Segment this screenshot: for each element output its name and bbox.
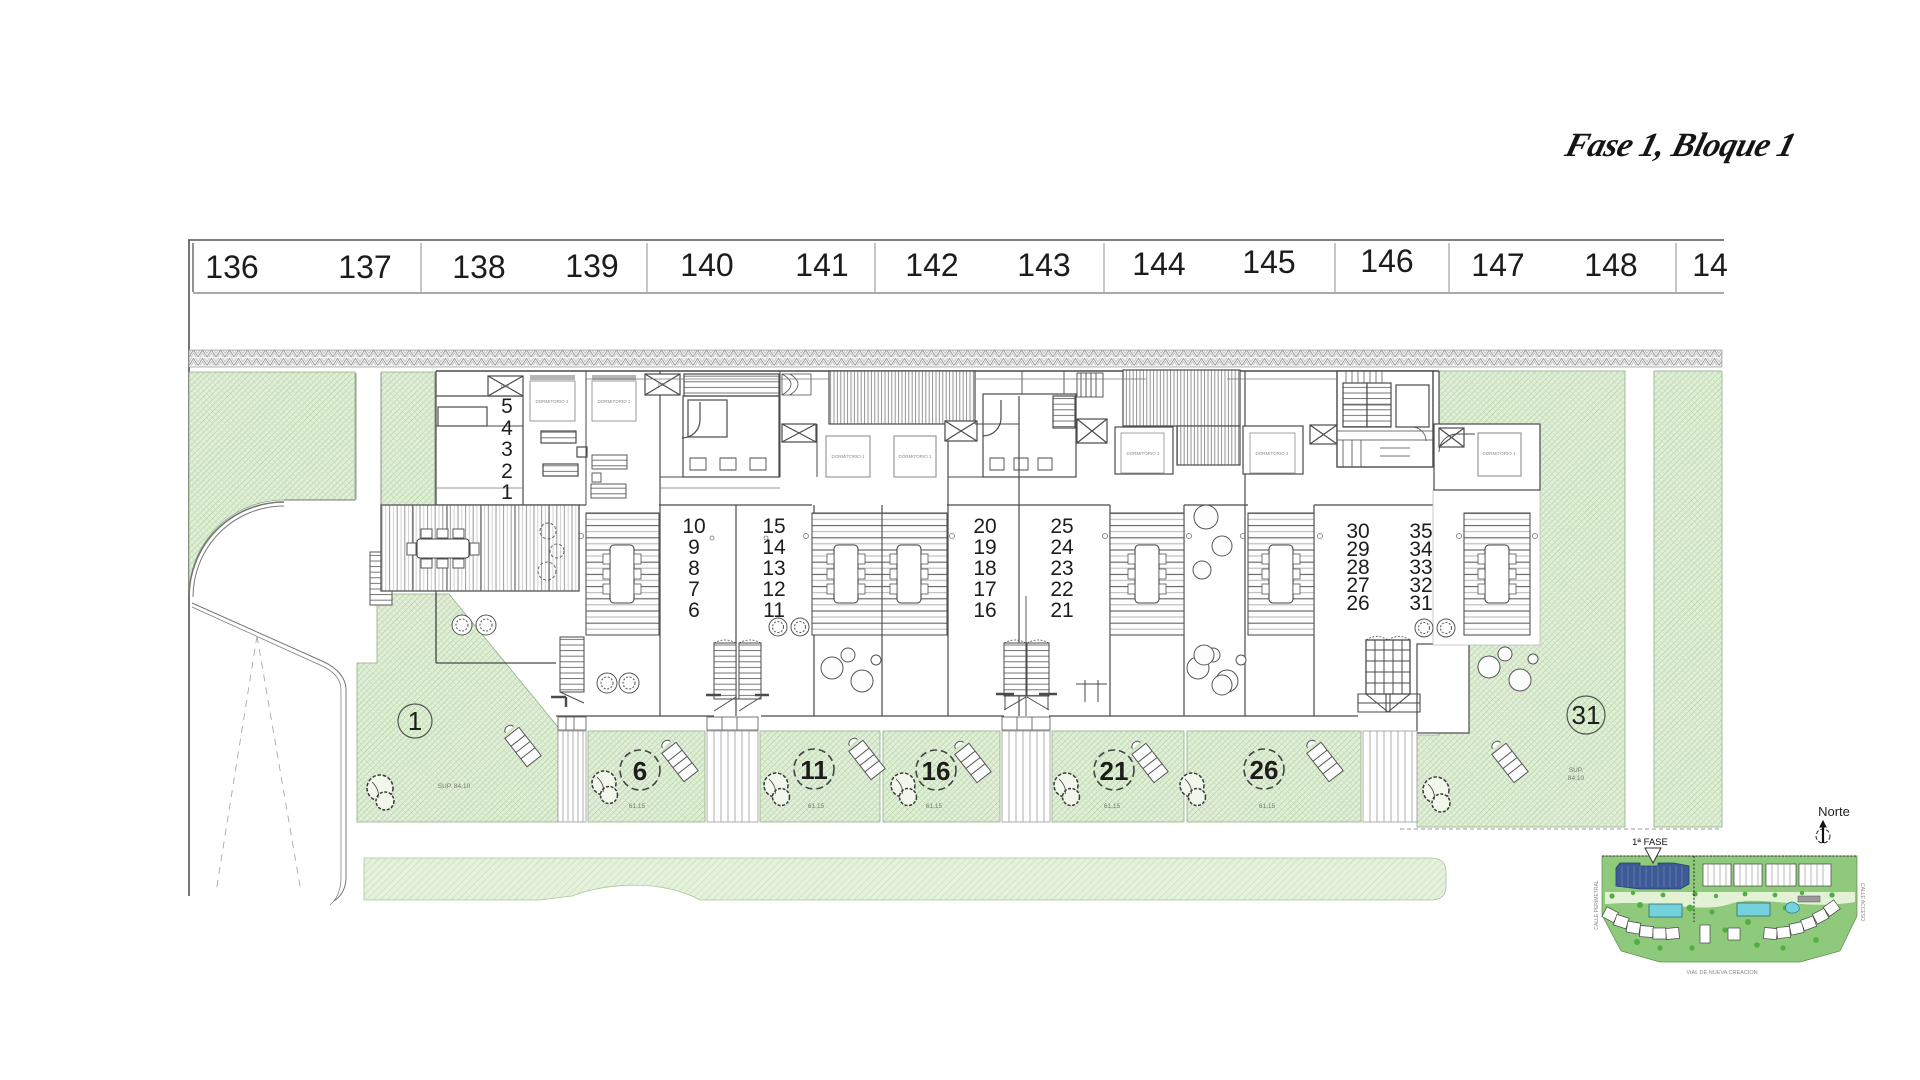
svg-text:19: 19 <box>973 536 996 559</box>
svg-text:DORMITORIO 1: DORMITORIO 1 <box>598 399 631 404</box>
svg-text:16: 16 <box>973 599 996 622</box>
svg-text:23: 23 <box>1050 557 1073 580</box>
svg-text:P.05: P.05 <box>501 384 510 389</box>
svg-text:61,15: 61,15 <box>1104 803 1121 810</box>
svg-text:146: 146 <box>1360 243 1413 279</box>
svg-text:148: 148 <box>1584 247 1637 283</box>
svg-text:15: 15 <box>762 515 785 538</box>
svg-text:18: 18 <box>973 557 996 580</box>
svg-text:137: 137 <box>338 249 391 285</box>
svg-text:20: 20 <box>973 515 996 538</box>
svg-text:DORMITORIO 1: DORMITORIO 1 <box>536 399 569 404</box>
svg-text:DORMITORIO 1: DORMITORIO 1 <box>1483 451 1516 456</box>
svg-text:21: 21 <box>1050 599 1073 622</box>
svg-text:VIAL DE NUEVA CREACION: VIAL DE NUEVA CREACION <box>1686 970 1757 976</box>
svg-text:DORMITORIO 1: DORMITORIO 1 <box>1256 451 1289 456</box>
svg-text:14: 14 <box>762 536 786 559</box>
svg-text:6: 6 <box>633 756 647 786</box>
svg-text:61,15: 61,15 <box>1259 803 1276 810</box>
svg-text:84,10: 84,10 <box>1568 775 1585 782</box>
svg-text:1: 1 <box>408 706 422 736</box>
svg-text:140: 140 <box>680 247 733 283</box>
svg-text:17: 17 <box>973 578 996 601</box>
svg-text:CALLE ACCESO: CALLE ACCESO <box>1859 883 1865 921</box>
svg-text:144: 144 <box>1132 246 1185 282</box>
svg-text:147: 147 <box>1471 247 1524 283</box>
svg-text:DORMITORIO 1: DORMITORIO 1 <box>1127 451 1160 456</box>
svg-text:142: 142 <box>905 247 958 283</box>
svg-text:8: 8 <box>688 557 700 580</box>
svg-text:12: 12 <box>762 578 785 601</box>
svg-text:Norte: Norte <box>1818 804 1850 819</box>
svg-text:141: 141 <box>795 247 848 283</box>
svg-text:6: 6 <box>688 599 700 622</box>
svg-text:61,15: 61,15 <box>629 803 646 810</box>
svg-text:11: 11 <box>800 755 828 785</box>
svg-text:145: 145 <box>1242 244 1295 280</box>
svg-text:61,15: 61,15 <box>926 803 943 810</box>
svg-text:31: 31 <box>1409 592 1432 615</box>
svg-text:3: 3 <box>501 438 513 461</box>
svg-text:SUP.: SUP. <box>1569 767 1584 774</box>
svg-text:7: 7 <box>688 578 700 601</box>
svg-text:138: 138 <box>452 249 505 285</box>
svg-text:10: 10 <box>682 515 705 538</box>
svg-text:1: 1 <box>501 481 513 504</box>
svg-text:24: 24 <box>1050 536 1074 559</box>
svg-text:143: 143 <box>1017 247 1070 283</box>
svg-text:13: 13 <box>762 557 785 580</box>
svg-text:P.05: P.05 <box>658 382 667 387</box>
svg-text:SUP. 84,10: SUP. 84,10 <box>438 783 471 790</box>
svg-text:21: 21 <box>1100 756 1129 786</box>
svg-text:11: 11 <box>763 599 785 622</box>
svg-text:139: 139 <box>565 248 618 284</box>
svg-text:61,15: 61,15 <box>808 803 825 810</box>
svg-text:5: 5 <box>501 395 513 418</box>
svg-text:DORMITORIO 1: DORMITORIO 1 <box>832 454 865 459</box>
svg-text:16: 16 <box>922 756 951 786</box>
svg-text:26: 26 <box>1250 755 1279 785</box>
svg-text:14: 14 <box>1692 247 1728 283</box>
svg-text:26: 26 <box>1346 592 1369 615</box>
svg-text:4: 4 <box>501 417 513 440</box>
svg-text:22: 22 <box>1050 578 1073 601</box>
svg-text:Fase 1, Bloque 1: Fase 1, Bloque 1 <box>1560 127 1799 164</box>
svg-text:1ª FASE: 1ª FASE <box>1632 837 1668 848</box>
svg-text:31: 31 <box>1572 700 1601 730</box>
svg-text:2: 2 <box>501 460 513 483</box>
svg-text:DORMITORIO 1: DORMITORIO 1 <box>899 454 932 459</box>
svg-text:136: 136 <box>205 249 258 285</box>
svg-text:9: 9 <box>688 536 700 559</box>
svg-text:CALLE PERIMETRAL: CALLE PERIMETRAL <box>1594 880 1600 929</box>
svg-text:25: 25 <box>1050 515 1073 538</box>
